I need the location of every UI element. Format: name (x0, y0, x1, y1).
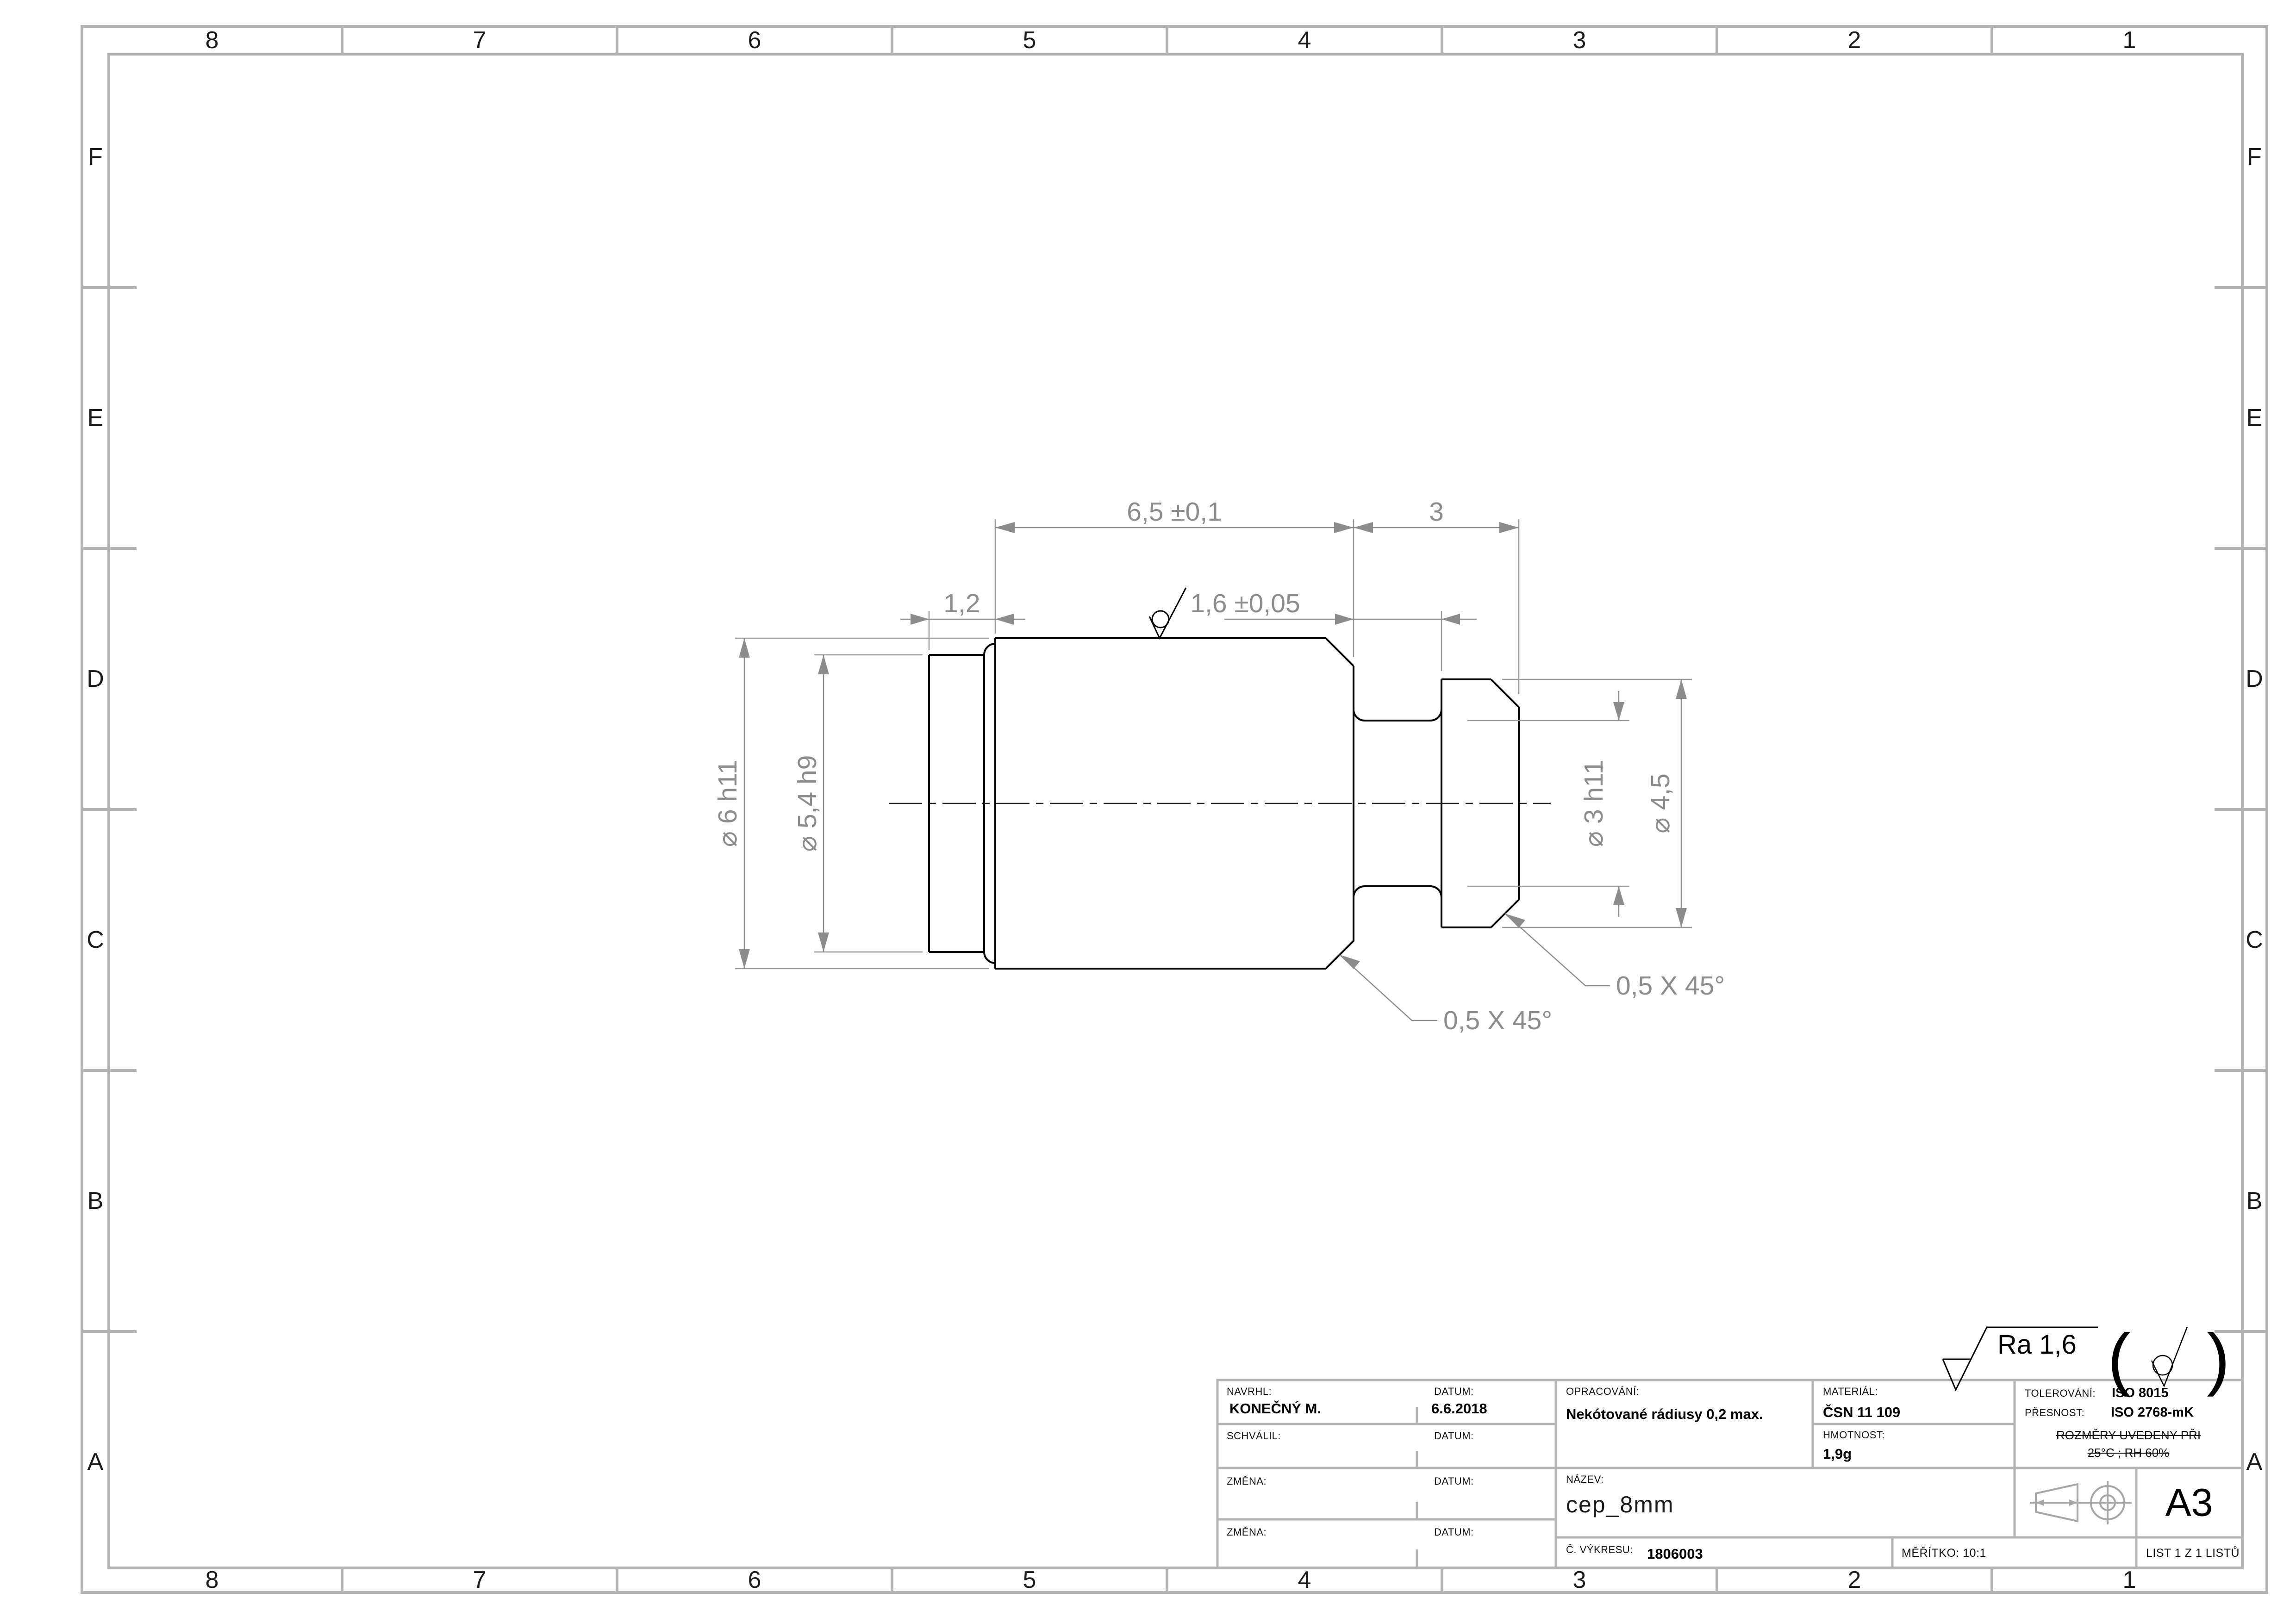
zone-col-top-2: 2 (1848, 26, 1861, 54)
datum2-label: DATUM: (1434, 1430, 1474, 1442)
zone-col-bot-3: 3 (1573, 1566, 1586, 1594)
cislo-vykresu-value: 1806003 (1647, 1546, 1703, 1562)
dim-chamfer-body: 0,5 X 45° (1443, 1005, 1552, 1036)
extension-lines (735, 519, 1692, 969)
surface-finish-icon (1149, 588, 1186, 638)
zone-row-left-D: D (87, 665, 104, 693)
zone-row-right-E: E (2246, 404, 2263, 432)
zone-col-top-4: 4 (1298, 26, 1311, 54)
nazev-value: cep_8mm (1566, 1491, 1674, 1518)
datum1-value: 6.6.2018 (1431, 1400, 1487, 1417)
zone-row-left-C: C (87, 926, 104, 954)
zone-col-bot-7: 7 (473, 1566, 487, 1594)
tolerovani-value: ISO 8015 (2112, 1386, 2169, 1401)
zone-row-left-E: E (87, 404, 104, 432)
zone-row-right-D: D (2246, 665, 2263, 693)
dim-length-tenon: 1,2 (943, 588, 980, 619)
opracovani-label: OPRACOVÁNÍ: (1566, 1386, 1639, 1398)
dim-length-head: 3 (1429, 497, 1444, 527)
schvalil-label: SCHVÁLIL: (1227, 1430, 1281, 1442)
zone-col-top-7: 7 (473, 26, 487, 54)
navrhl-value: KONEČNÝ M. (1229, 1400, 1321, 1417)
sheet-frame (82, 26, 2267, 1592)
dim-chamfer-head: 0,5 X 45° (1616, 970, 1725, 1001)
zone-col-top-1: 1 (2123, 26, 2136, 54)
zone-col-bot-6: 6 (748, 1566, 761, 1594)
material-label: MATERIÁL: (1823, 1386, 1878, 1398)
dim-dia-tenon: ⌀ 5,4 h9 (792, 755, 823, 852)
zone-row-left-A: A (87, 1448, 104, 1476)
nazev-label: NÁZEV: (1566, 1474, 1604, 1486)
dim-length-neck: 1,6 ±0,05 (1190, 588, 1300, 619)
dim-dia-head: ⌀ 4,5 (1645, 773, 1676, 833)
presnost-value: ISO 2768-mK (2111, 1405, 2194, 1420)
dim-dia-neck: ⌀ 3 h11 (1578, 760, 1609, 847)
zone-row-left-F: F (88, 143, 103, 171)
zone-col-top-3: 3 (1573, 26, 1586, 54)
dim-dia-body: ⌀ 6 h11 (712, 760, 743, 847)
presnost-label: PŘESNOST: (2025, 1407, 2084, 1419)
zone-col-top-5: 5 (1023, 26, 1036, 54)
ra-paren-close: ) (2207, 1318, 2230, 1399)
zone-col-top-8: 8 (206, 26, 219, 54)
zone-row-right-C: C (2246, 926, 2263, 954)
ra-paren-check-icon (2152, 1327, 2187, 1386)
zone-ticks (82, 26, 2267, 1592)
hmotnost-label: HMOTNOST: (1823, 1429, 1885, 1441)
zone-col-bot-2: 2 (1848, 1566, 1861, 1594)
list-value: LIST 1 Z 1 LISTŮ (2146, 1547, 2240, 1560)
navrhl-label: NAVRHL: (1227, 1386, 1272, 1398)
material-value: ČSN 11 109 (1823, 1404, 1900, 1421)
drawing-sheet: 8 7 6 5 4 3 2 1 8 7 6 5 4 3 2 1 F E D C … (0, 0, 2296, 1623)
format-value: A3 (2165, 1480, 2213, 1525)
datum1-label: DATUM: (1434, 1386, 1474, 1398)
zone-row-left-B: B (87, 1187, 104, 1215)
rozmery-line2: 25°C ; RH 60% (2088, 1446, 2170, 1460)
ra-note-text: Ra 1,6 (1997, 1329, 2077, 1360)
opracovani-value: Nekótované rádiusy 0,2 max. (1566, 1406, 1763, 1423)
drawing-linework (0, 0, 2296, 1623)
zone-col-top-6: 6 (748, 26, 761, 54)
dim-length-body: 6,5 ±0,1 (1127, 497, 1222, 527)
datum4-label: DATUM: (1434, 1526, 1474, 1538)
zmena1-label: ZMĚNA: (1227, 1475, 1267, 1487)
zone-row-right-A: A (2246, 1448, 2263, 1476)
datum3-label: DATUM: (1434, 1475, 1474, 1487)
cislo-vykresu-label: Č. VÝKRESU: (1566, 1544, 1633, 1556)
zone-row-right-F: F (2247, 143, 2262, 171)
tolerovani-label: TOLEROVÁNÍ: (2025, 1387, 2096, 1399)
zmena2-label: ZMĚNA: (1227, 1526, 1267, 1538)
hmotnost-value: 1,9g (1823, 1446, 1852, 1462)
zone-col-bot-5: 5 (1023, 1566, 1036, 1594)
meritko-value: MĚŘÍTKO: 10:1 (1902, 1547, 1986, 1560)
zone-col-bot-1: 1 (2123, 1566, 2136, 1594)
zone-row-right-B: B (2246, 1187, 2263, 1215)
zone-col-bot-8: 8 (206, 1566, 219, 1594)
chamfer-leaders (1340, 914, 1610, 1020)
projection-symbol-icon (2030, 1481, 2132, 1524)
rozmery-line1: ROZMĚRY UVEDENY PŘI (2056, 1428, 2201, 1443)
zone-col-bot-4: 4 (1298, 1566, 1311, 1594)
